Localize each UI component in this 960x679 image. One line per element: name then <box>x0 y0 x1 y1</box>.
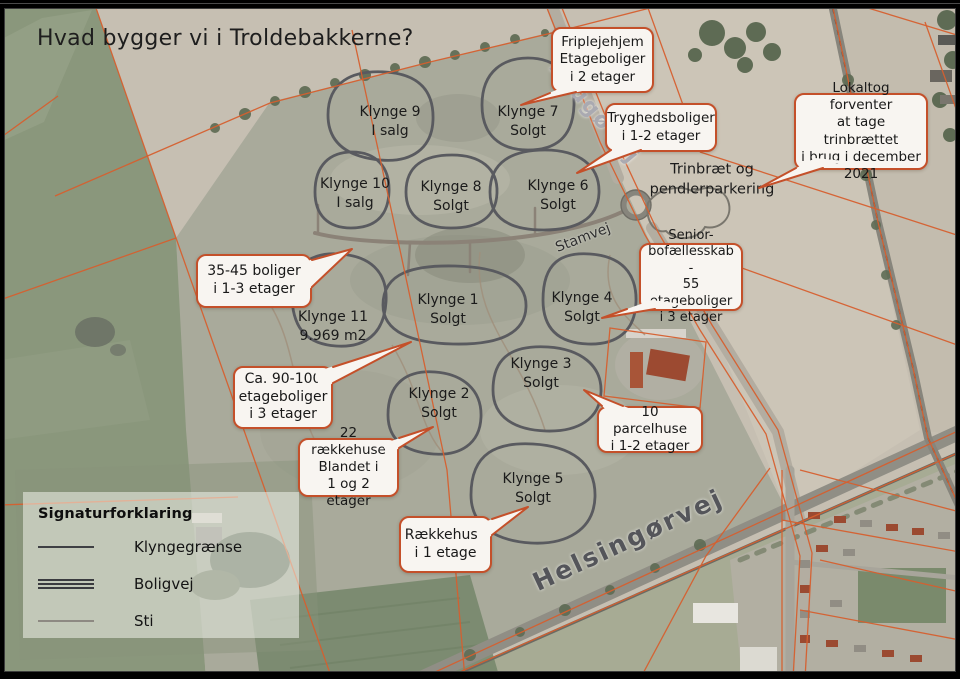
legend-heading: Signaturforklaring <box>38 506 283 522</box>
callout-friplejehjem: Friplejehjem Etageboliger i 2 etager <box>551 27 654 93</box>
legend-line <box>38 583 94 585</box>
callout-tryghedsboliger: Tryghedsboliger i 1-2 etager <box>605 103 717 152</box>
cluster-label-klynge-5: Klynge 5 Solgt <box>502 470 563 508</box>
callout-seniorbofaellesskab: Senior- bofællesskab - 55 etageboliger i… <box>639 243 743 311</box>
cluster-label-klynge-4: Klynge 4 Solgt <box>551 289 612 327</box>
cluster-label-klynge-1: Klynge 1 Solgt <box>417 291 478 329</box>
legend-label: Klyngegrænse <box>134 538 242 556</box>
legend-line <box>38 579 94 581</box>
window-edge-line <box>0 3 960 4</box>
legend-label: Sti <box>134 612 154 630</box>
pond <box>75 317 115 347</box>
legend-symbol-residential-road <box>38 577 94 591</box>
cluster-label-klynge-8: Klynge 8 Solgt <box>420 178 481 216</box>
cluster-label-klynge-3: Klynge 3 Solgt <box>510 355 571 393</box>
legend-line <box>38 620 94 622</box>
buildings-ne <box>930 35 956 104</box>
cluster-label-klynge-9: Klynge 9 I salg <box>359 103 420 141</box>
suburb-houses <box>693 512 950 672</box>
legend-symbol-cluster-boundary <box>38 546 94 549</box>
legend-symbol-path <box>38 620 94 622</box>
roundabout <box>624 193 648 217</box>
cluster-label-klynge-6: Klynge 6 Solgt <box>527 177 588 215</box>
legend-label: Boligvej <box>134 575 194 593</box>
legend-item-boligvej: Boligvej <box>38 575 283 593</box>
callout-parcelhuse-10: 10 parcelhuse i 1-2 etager <box>597 406 703 453</box>
callout-boliger-35-45: 35-45 boliger i 1-3 etager <box>196 254 312 308</box>
legend-item-klyngegraense: Klyngegrænse <box>38 538 283 556</box>
aerial-map: Laugøvej Stamvej Helsingørvej Klynge 9 I… <box>4 8 956 672</box>
legend: Signaturforklaring Klyngegrænse Boligvej <box>23 492 299 638</box>
page-title: Hvad bygger vi i Troldebakkerne? <box>37 26 414 51</box>
cluster-label-klynge-11: Klynge 11 9.969 m2 <box>298 308 368 346</box>
station-label: Trinbræt og pendlerparkering <box>650 160 775 199</box>
farm-buildings <box>615 329 705 400</box>
troldebakkerne-map-page: { "title": "Hvad bygger vi i Troldebakke… <box>0 0 960 679</box>
callout-raekkehuse-22: 22 rækkehuse Blandet i 1 og 2 etager <box>298 438 399 497</box>
road-label-stamvej: Stamvej <box>553 220 612 256</box>
callout-lokaltog: Lokaltog forventer at tage trinbrættet i… <box>794 93 928 170</box>
cluster-label-klynge-7: Klynge 7 Solgt <box>497 103 558 141</box>
suburb-green <box>858 568 946 623</box>
legend-item-sti: Sti <box>38 612 283 630</box>
cluster-label-klynge-2: Klynge 2 Solgt <box>408 385 469 423</box>
callout-etageboliger-90-100: Ca. 90-100 etageboliger i 3 etager <box>233 366 333 429</box>
legend-line <box>38 587 94 589</box>
cluster-label-klynge-10: Klynge 10 I salg <box>320 175 390 213</box>
legend-line <box>38 546 94 549</box>
road-helsingorvej-line <box>420 432 956 672</box>
callout-raekkehuse-1-etage: Rækkehuse i 1 etage <box>399 516 492 573</box>
suburb-area <box>730 462 956 672</box>
